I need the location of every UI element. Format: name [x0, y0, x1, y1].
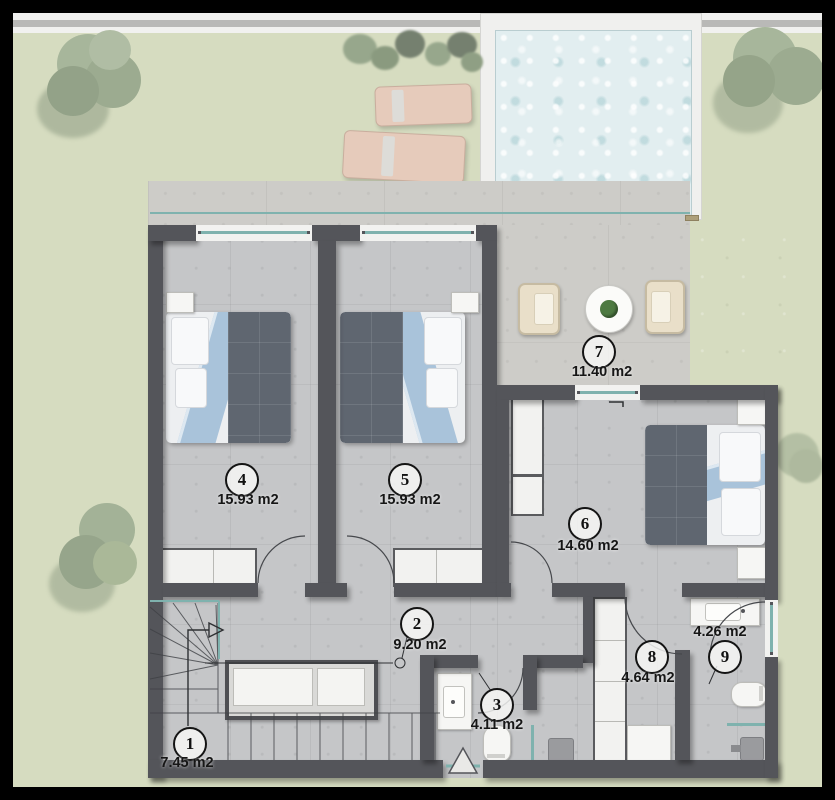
room-area-8: 4.64 m2 [621, 670, 674, 686]
room-label-9: 9 [708, 640, 742, 674]
room-label-8: 8 [635, 640, 669, 674]
room-area-9: 4.26 m2 [693, 624, 746, 640]
site-plan-scene: 1 7.45 m2 2 9.20 m2 3 4.11 m2 4 15.93 m2… [13, 13, 822, 787]
room-area-5: 15.93 m2 [379, 492, 440, 508]
room-area-1: 7.45 m2 [160, 755, 213, 771]
room-area-4: 15.93 m2 [217, 492, 278, 508]
room-area-7: 11.40 m2 [572, 364, 632, 380]
room-label-6: 6 [568, 507, 602, 541]
stairs [13, 13, 822, 787]
room-area-2: 9.20 m2 [393, 637, 446, 653]
room-area-6: 14.60 m2 [557, 538, 618, 554]
floor-plan-image: 1 7.45 m2 2 9.20 m2 3 4.11 m2 4 15.93 m2… [0, 0, 835, 800]
room-area-3: 4.11 m2 [471, 717, 523, 733]
room-label-2: 2 [400, 607, 434, 641]
